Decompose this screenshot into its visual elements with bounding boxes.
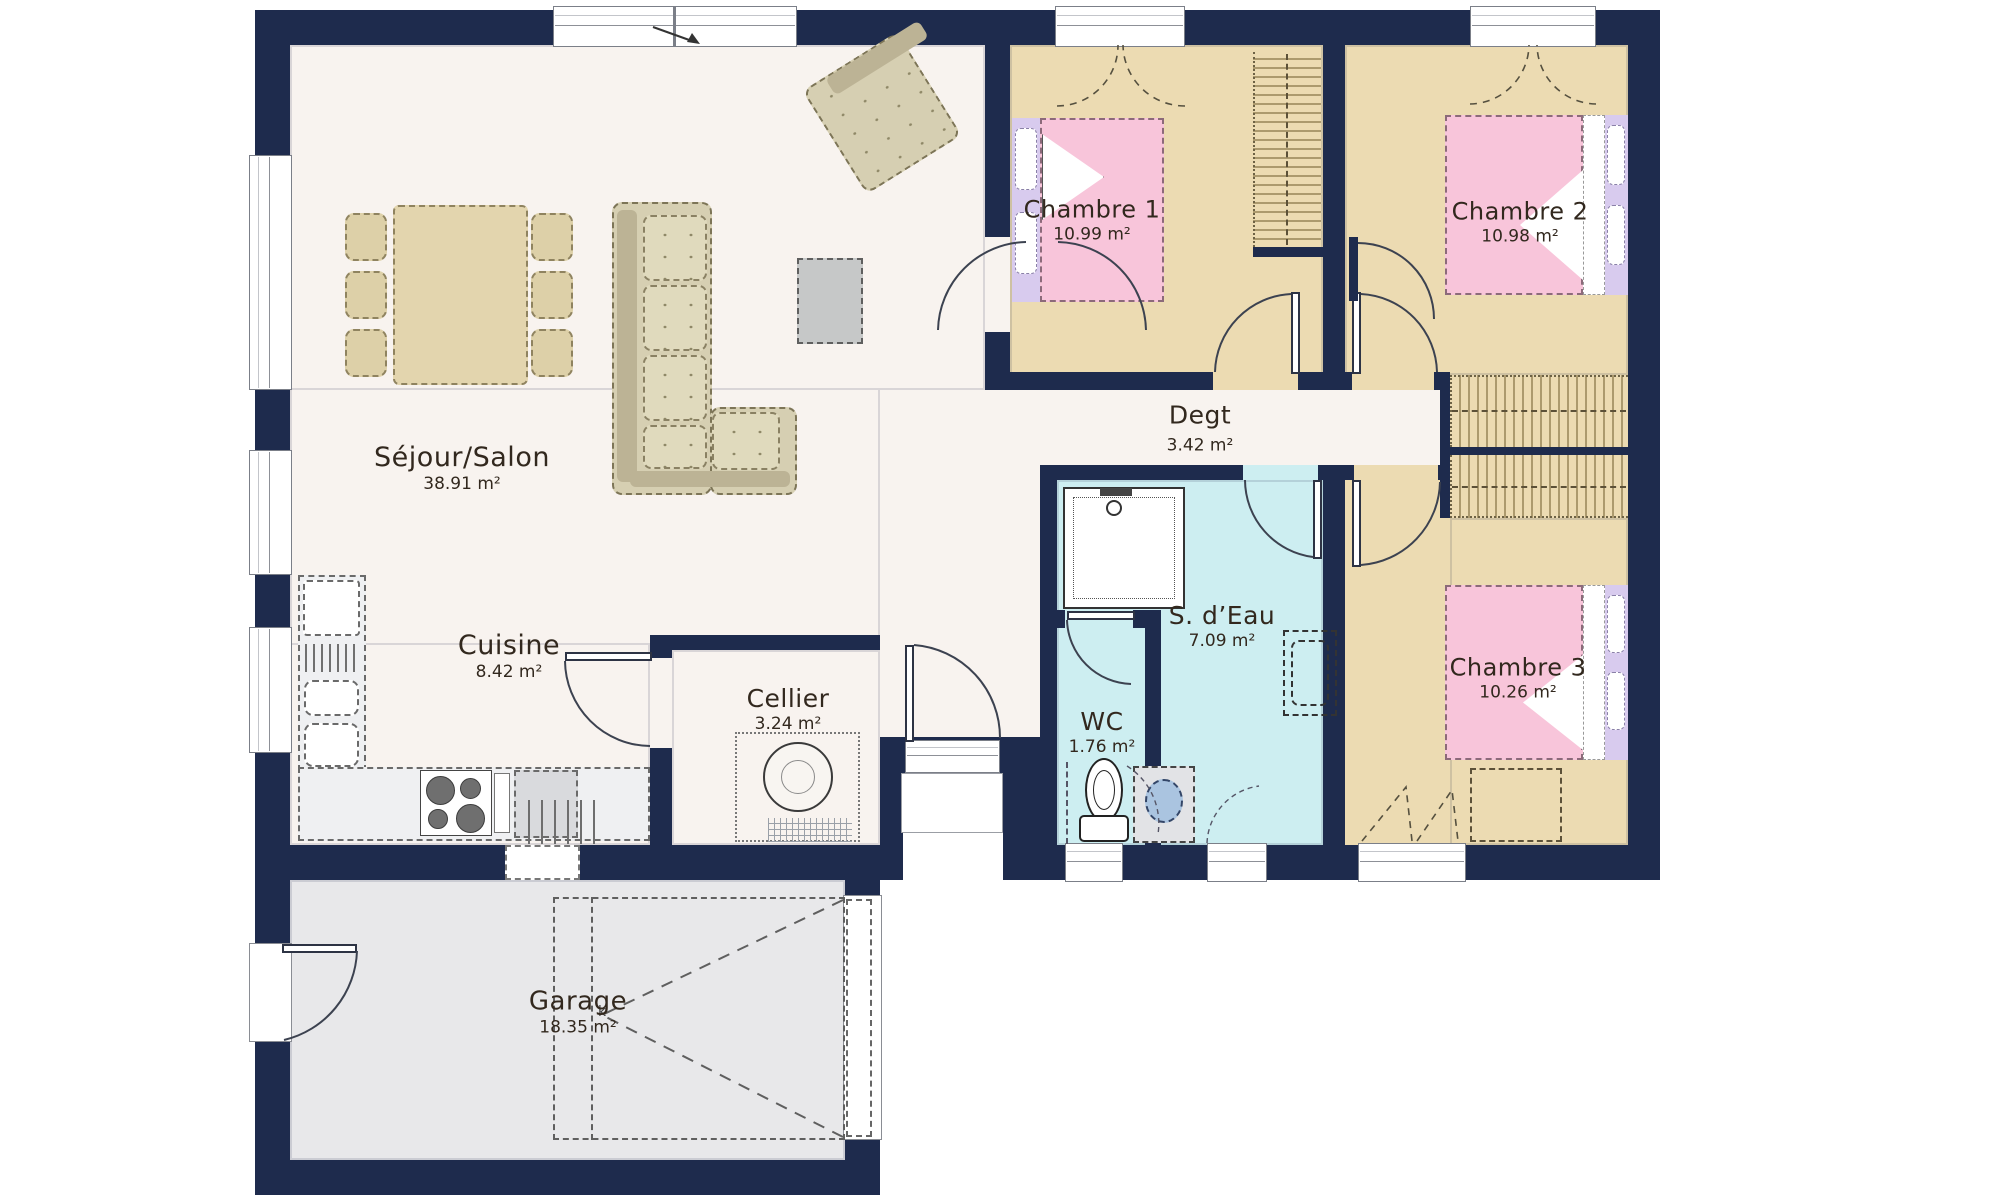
wall-sdeau-left (1040, 465, 1057, 845)
wall-chambre1-chambre2 (1323, 45, 1345, 390)
door-gap-chambre3 (1354, 465, 1438, 480)
room-degt-floor (1040, 390, 1440, 465)
label-degt: Degt 3.42 m² (1167, 401, 1234, 456)
room-area: 8.42 m² (458, 662, 560, 682)
room-name: Garage (529, 987, 627, 1017)
garage-side-door-opening (249, 943, 292, 1042)
window-cuisine-left-upper (249, 450, 292, 575)
wall-cellier-top (650, 635, 880, 650)
garage-side-door-leaf (282, 944, 357, 953)
wall-degt-closets (1440, 372, 1450, 518)
room-area: 7.09 m² (1169, 631, 1276, 651)
wall-sejour-chambre1 (985, 45, 1010, 390)
chambre1-door-leaf (1291, 292, 1300, 374)
room-name: Chambre 1 (1024, 196, 1161, 224)
dining-chair (345, 271, 387, 319)
label-chambre-1: Chambre 1 10.99 m² (1024, 196, 1161, 245)
room-area: 18.35 m² (529, 1018, 627, 1038)
window-sejour-top-mullion (673, 6, 676, 47)
garage-service-hatch (505, 845, 580, 880)
window-chambre1-top (1055, 6, 1185, 47)
dining-chair (345, 213, 387, 261)
label-chambre-2: Chambre 2 10.98 m² (1452, 198, 1589, 247)
room-name: WC (1069, 707, 1136, 736)
dining-chair (531, 329, 573, 377)
garage-door-panel (846, 899, 872, 1137)
chambre1-pillow (1015, 128, 1037, 190)
porch-step (901, 773, 1003, 833)
room-name: Chambre 2 (1452, 198, 1589, 226)
sofa-backrest (617, 210, 637, 482)
sdeau-washer-drum (1145, 779, 1183, 823)
shower-tray (1073, 497, 1175, 599)
wc-door-leaf (1067, 611, 1135, 620)
kitchen-sink-lower (304, 723, 359, 767)
dining-table (393, 205, 528, 385)
closet-chambre3-rail (1452, 486, 1626, 488)
door-gap-chambre2 (1352, 372, 1434, 390)
entry-door-leaf (905, 645, 914, 742)
label-sdeau: S. d’Eau 7.09 m² (1169, 601, 1276, 651)
cellier-washer-drum (781, 760, 815, 794)
stove-burner (426, 776, 455, 805)
sofa-cushion (643, 215, 707, 281)
room-area: 10.99 m² (1024, 225, 1161, 245)
kitchen-sink-upper (304, 680, 359, 716)
dining-chair (345, 329, 387, 377)
label-sejour-salon: Séjour/Salon 38.91 m² (374, 442, 550, 494)
room-name: Cellier (747, 684, 830, 713)
dining-chair (531, 271, 573, 319)
dining-chair (531, 213, 573, 261)
sofa-cushion (643, 285, 707, 351)
vanity-sink (1291, 640, 1329, 706)
room-name: Degt (1167, 401, 1234, 430)
closet-chambre1-rail (1286, 54, 1288, 245)
kitchen-fridge (303, 580, 360, 636)
chambre3-pillow (1607, 672, 1625, 730)
opening-sejour-chambre1 (985, 237, 1010, 332)
toilet-tank (1079, 815, 1129, 842)
sofa-cushion (643, 425, 707, 469)
wc-partition-line (1066, 762, 1068, 844)
stove-burner (456, 804, 485, 833)
room-area: 38.91 m² (374, 474, 550, 494)
room-area: 3.42 m² (1167, 436, 1234, 456)
window-chambre2-top (1470, 6, 1596, 47)
cellier-mat (768, 818, 852, 842)
wall-between-closets (1440, 447, 1628, 455)
chambre2-upper-door-leaf (1349, 237, 1358, 301)
entry-door-threshold (905, 740, 1000, 773)
label-cuisine: Cuisine 8.42 m² (458, 630, 560, 682)
closet-chambre2-rail (1452, 410, 1626, 412)
stove-burner (428, 809, 448, 829)
label-chambre-3: Chambre 3 10.26 m² (1450, 654, 1587, 703)
door-gap-sdeau (1243, 465, 1318, 480)
shower-head (1100, 488, 1132, 496)
window-chambre3-bottom (1358, 843, 1466, 882)
chambre3-wardrobe (1470, 768, 1562, 842)
window-cuisine-left-lower (249, 627, 292, 753)
room-area: 10.98 m² (1452, 227, 1589, 247)
room-area: 3.24 m² (747, 714, 830, 734)
sdeau-door-leaf (1313, 480, 1322, 559)
chambre2-pillow (1607, 205, 1625, 265)
room-name: Chambre 3 (1450, 654, 1587, 682)
chambre2-door-leaf (1352, 292, 1361, 374)
window-wc-bottom (1065, 843, 1123, 882)
sofa-cushion (643, 355, 707, 421)
door-gap-cellier (650, 658, 672, 748)
entry-zone-floor (880, 390, 1040, 745)
room-area: 10.26 m² (1450, 683, 1587, 703)
coffee-table (797, 258, 863, 344)
chambre3-door-leaf (1352, 480, 1361, 567)
kitchen-vent-rack (305, 644, 359, 672)
room-name: Cuisine (458, 630, 560, 661)
cellier-door-leaf (565, 652, 652, 661)
kitchen-drainer (494, 773, 510, 833)
label-cellier: Cellier 3.24 m² (747, 684, 830, 734)
sofa-backrest-bottom (630, 471, 790, 487)
attic-ladder (528, 800, 602, 844)
chambre2-pillow (1607, 125, 1625, 185)
floor-plan-canvas: { "rooms": [ {"id": "sejour-salon", "nam… (0, 0, 2000, 1200)
room-area: 1.76 m² (1069, 737, 1136, 757)
chambre3-pillow (1607, 595, 1625, 653)
wall-closet1-bottom (1253, 247, 1323, 257)
room-name: S. d’Eau (1169, 601, 1276, 630)
window-sdeau-bottom (1207, 843, 1267, 882)
label-wc: WC 1.76 m² (1069, 707, 1136, 757)
shower-drain (1106, 500, 1122, 516)
room-name: Séjour/Salon (374, 442, 550, 473)
window-sejour-left (249, 155, 292, 390)
door-gap-chambre1 (1213, 372, 1298, 390)
label-garage: Garage 18.35 m² (529, 987, 627, 1038)
sofa-cushion-corner (712, 412, 780, 470)
stove-burner (460, 778, 481, 799)
toilet-seat (1093, 770, 1115, 810)
